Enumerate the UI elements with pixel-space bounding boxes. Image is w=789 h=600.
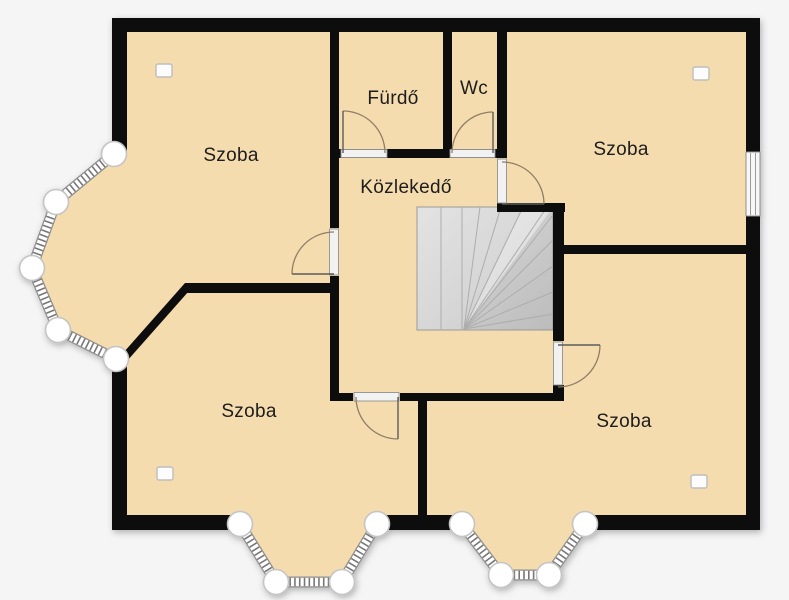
staircase [417,207,553,330]
window-right-wall [746,152,760,216]
room-label-szoba-top-right: Szoba [593,139,649,160]
wall-outer-right-lower [746,216,760,530]
wall-stairwell-right-upper [553,212,564,341]
wall-outer-top [112,18,760,32]
wall-outer-bottom-right [590,515,760,530]
bay-post [44,190,69,215]
bay-post [365,512,390,537]
floor-plan-canvas: Szoba Fürdő Wc Szoba Közlekedő Szoba Szo… [0,0,789,600]
wall-bath-wc-divider [443,32,452,149]
room-label-furdo: Fürdő [367,88,418,109]
bay-post [228,512,253,537]
wall-corridor-left-lower [330,276,339,401]
wall-corridor-bottom-right [400,393,564,401]
wall-outer-left-lower [112,358,127,515]
wall-corridor-bottom-left [330,393,353,401]
bay-post [537,563,562,588]
bay-post [330,570,355,595]
room-label-kozlekedo: Közlekedő [360,177,451,198]
fixture-icon [691,475,707,488]
wall-right-rooms-divider [562,245,746,254]
fixture-icon [157,467,173,480]
wall-corridor-left-upper [330,32,339,228]
bay-post [264,570,289,595]
floor-plan-drawing: Szoba Fürdő Wc Szoba Közlekedő Szoba Szo… [0,0,789,600]
bay-post [20,256,45,281]
bay-post [102,142,127,167]
room-label-szoba-top-left: Szoba [203,145,259,166]
wall-topright-room-left [497,32,507,158]
bay-post [573,512,598,537]
room-label-wc: Wc [460,78,488,99]
bay-post [104,347,129,372]
bay-post [489,563,514,588]
fixture-icon [156,64,172,77]
wall-bottom-rooms-divider [418,401,427,515]
wall-topleft-bottomleft [185,283,330,293]
room-label-szoba-bottom-left: Szoba [221,401,277,422]
wall-outer-bottom-left [112,515,238,530]
wall-outer-left-upper [112,32,127,152]
fixture-icon [693,67,709,80]
bay-post [46,318,71,343]
wall-outer-right-upper [746,32,760,152]
room-label-szoba-bottom-right: Szoba [596,411,652,432]
bay-post [450,512,475,537]
